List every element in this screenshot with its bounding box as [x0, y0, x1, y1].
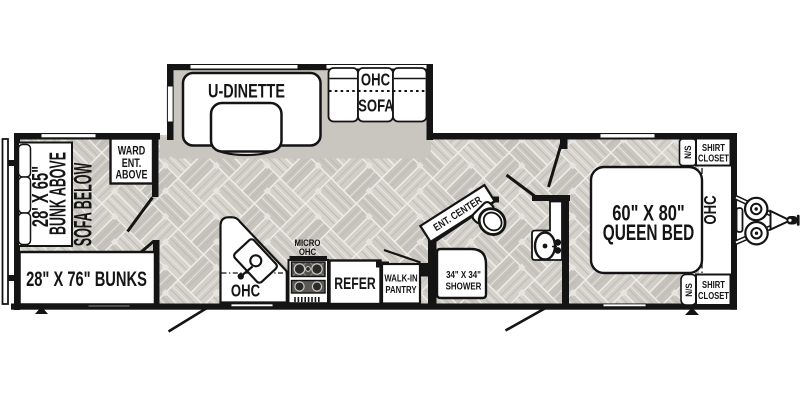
svg-text:SHIRT: SHIRT	[702, 142, 725, 153]
svg-text:REFER: REFER	[334, 275, 376, 293]
svg-text:N/S: N/S	[682, 145, 693, 159]
svg-text:CLOSET: CLOSET	[698, 153, 729, 164]
svg-text:34" X 34": 34" X 34"	[446, 269, 481, 280]
svg-text:SHOWER: SHOWER	[446, 281, 482, 292]
svg-text:N/S: N/S	[683, 283, 694, 297]
svg-text:SOFA BELOW: SOFA BELOW	[70, 163, 98, 247]
svg-text:SOFA: SOFA	[358, 97, 394, 116]
svg-text:OHC: OHC	[361, 71, 390, 90]
svg-text:U-DINETTE: U-DINETTE	[208, 79, 285, 102]
svg-text:OHC: OHC	[701, 195, 720, 224]
svg-text:ABOVE: ABOVE	[116, 168, 148, 182]
svg-text:OHC: OHC	[231, 282, 260, 301]
svg-text:SHIRT: SHIRT	[702, 279, 725, 290]
svg-text:WALK-IN: WALK-IN	[384, 273, 417, 284]
svg-text:CLOSET: CLOSET	[698, 290, 729, 301]
svg-text:28" X 76" BUNKS: 28" X 76" BUNKS	[26, 267, 147, 290]
svg-text:PANTRY: PANTRY	[385, 284, 416, 295]
svg-text:BUNK ABOVE: BUNK ABOVE	[44, 152, 70, 235]
svg-text:QUEEN BED: QUEEN BED	[603, 221, 694, 245]
svg-text:OHC: OHC	[299, 246, 317, 257]
